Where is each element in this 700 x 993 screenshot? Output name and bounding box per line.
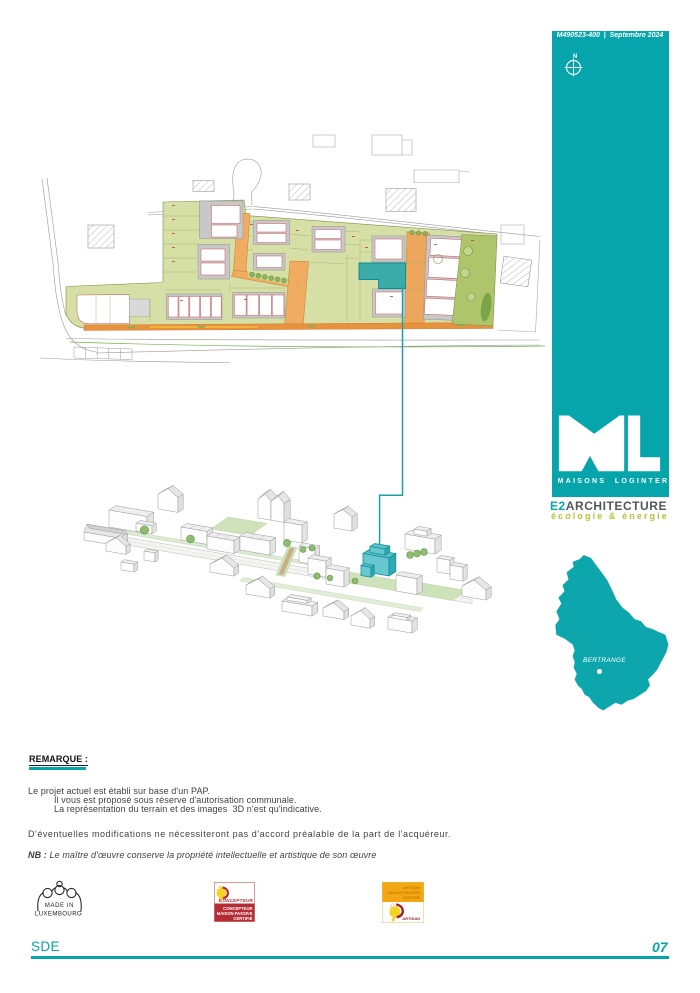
svg-text:LUXEMBOURG: LUXEMBOURG (35, 911, 82, 918)
svg-text:MAISON PASSIVE: MAISON PASSIVE (388, 891, 421, 895)
svg-text:ARTISAN: ARTISAN (403, 886, 420, 890)
svg-text:CERTIFIÉ: CERTIFIÉ (233, 916, 252, 921)
svg-text:MADE IN: MADE IN (45, 903, 74, 909)
svg-text:CERTIFIÉ: CERTIFIÉ (403, 895, 421, 900)
svg-text:CONCEPTEUR: CONCEPTEUR (218, 897, 253, 902)
svg-text:ARTISAN: ARTISAN (401, 916, 420, 921)
